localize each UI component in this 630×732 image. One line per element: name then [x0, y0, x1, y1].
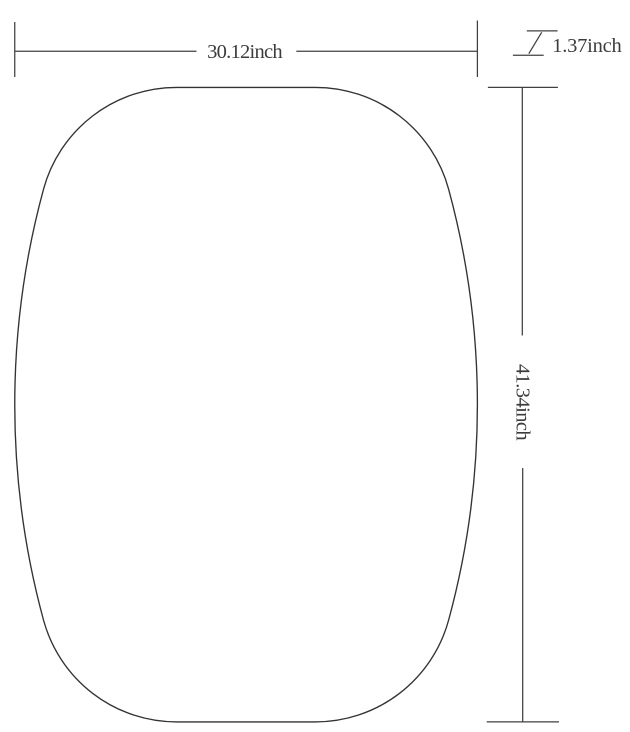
svg-text:30.12inch: 30.12inch: [207, 41, 282, 63]
svg-text:1.37inch: 1.37inch: [552, 35, 621, 57]
svg-text:41.34inch: 41.34inch: [512, 364, 534, 440]
